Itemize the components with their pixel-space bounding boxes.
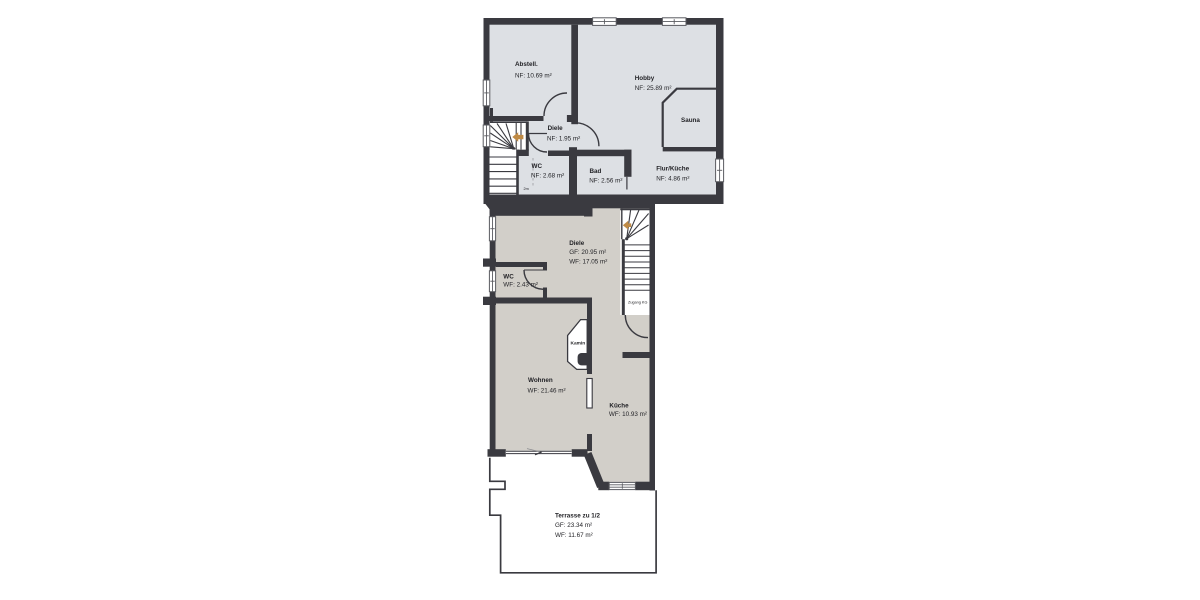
svg-text:Kamin: Kamin	[571, 341, 586, 347]
svg-text:Hobby: Hobby	[635, 75, 655, 82]
svg-text:Bad: Bad	[590, 168, 602, 175]
svg-text:Sauna: Sauna	[681, 117, 700, 124]
svg-text:NF: 1.95 m²: NF: 1.95 m²	[547, 135, 580, 142]
svg-text:Zugang KG: Zugang KG	[628, 301, 647, 305]
svg-text:WF: 10.93 m²: WF: 10.93 m²	[609, 411, 647, 418]
svg-text:WF: 2.43 m²: WF: 2.43 m²	[503, 282, 538, 289]
svg-text:Diele: Diele	[548, 125, 564, 132]
svg-text:NF: 4.86 m²: NF: 4.86 m²	[656, 175, 689, 182]
svg-text:WC: WC	[532, 163, 543, 170]
svg-text:NF: 25.89 m²: NF: 25.89 m²	[635, 85, 672, 92]
svg-text:WF: 21.46 m²: WF: 21.46 m²	[528, 388, 566, 395]
svg-text:Terrasse zu 1/2: Terrasse zu 1/2	[555, 512, 601, 519]
svg-text:GF: 20.95 m²: GF: 20.95 m²	[569, 249, 606, 256]
svg-text:Diele: Diele	[569, 240, 585, 247]
svg-text:Flur/Küche: Flur/Küche	[656, 166, 689, 173]
svg-text:NF: 2.56 m²: NF: 2.56 m²	[589, 178, 622, 185]
svg-text:GF: 23.34 m²: GF: 23.34 m²	[555, 522, 592, 529]
svg-text:NF: 10.69 m²: NF: 10.69 m²	[515, 73, 552, 80]
svg-text:WC: WC	[503, 273, 514, 280]
svg-text:NF: 2.68 m²: NF: 2.68 m²	[531, 172, 564, 179]
svg-text:WF: 11.67 m²: WF: 11.67 m²	[555, 532, 593, 539]
svg-text:Abstell.: Abstell.	[515, 61, 538, 68]
svg-text:2m: 2m	[524, 187, 529, 191]
svg-text:Wohnen: Wohnen	[528, 377, 553, 384]
svg-text:WF: 17.05 m²: WF: 17.05 m²	[569, 258, 607, 265]
svg-text:Küche: Küche	[609, 402, 629, 409]
